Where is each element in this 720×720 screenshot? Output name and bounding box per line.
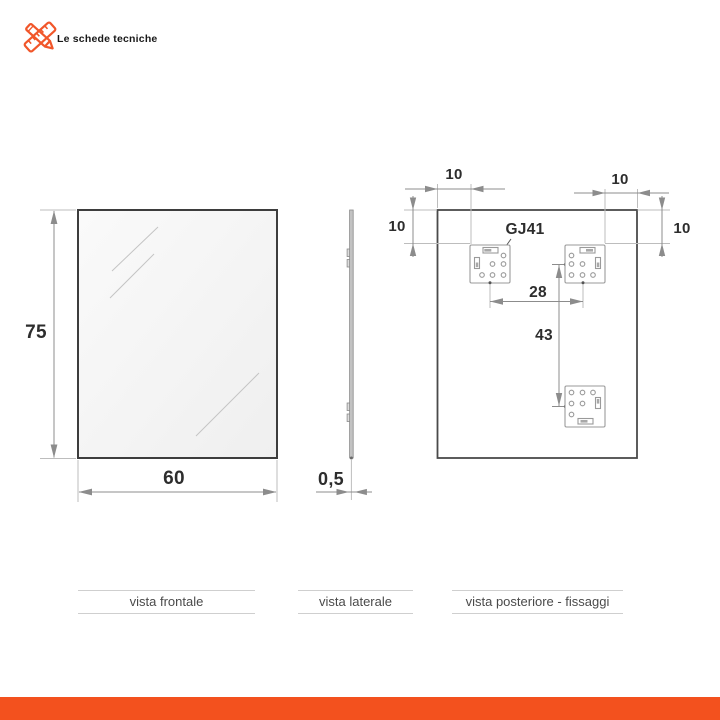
mirror-side-profile xyxy=(350,210,354,458)
rear-offset-left-value: 10 xyxy=(384,218,410,235)
footer-accent-bar xyxy=(0,697,720,720)
side-thickness-value: 0,5 xyxy=(311,469,351,490)
bracket-model-label: GJ41 xyxy=(501,221,549,239)
side-view xyxy=(316,210,372,500)
rear-offset-top-right-value: 10 xyxy=(607,171,633,188)
caption-side-view: vista laterale xyxy=(298,590,413,614)
technical-sheet-page: Le schede tecniche xyxy=(0,0,720,720)
rear-dim-offset-top-right xyxy=(574,190,669,196)
caption-front-view: vista frontale xyxy=(78,590,255,614)
front-view xyxy=(40,210,277,502)
mirror-front-panel xyxy=(78,210,277,458)
wall-bracket-top-left xyxy=(470,245,510,284)
front-height-value: 75 xyxy=(22,322,50,344)
front-width-value: 60 xyxy=(160,468,188,490)
rear-dim-offset-top-left xyxy=(405,186,505,192)
rear-vertical-spacing-value: 43 xyxy=(530,327,558,345)
rear-offset-top-left-value: 10 xyxy=(441,166,467,183)
rear-offset-right-value: 10 xyxy=(669,220,695,237)
rear-dim-offset-left xyxy=(410,196,416,257)
wall-bracket-bottom xyxy=(565,386,605,427)
rear-bracket-spacing-value: 28 xyxy=(524,284,552,302)
rear-dim-offset-right xyxy=(659,196,665,257)
wall-bracket-top-right xyxy=(565,245,605,284)
caption-rear-view: vista posteriore - fissaggi xyxy=(452,590,623,614)
